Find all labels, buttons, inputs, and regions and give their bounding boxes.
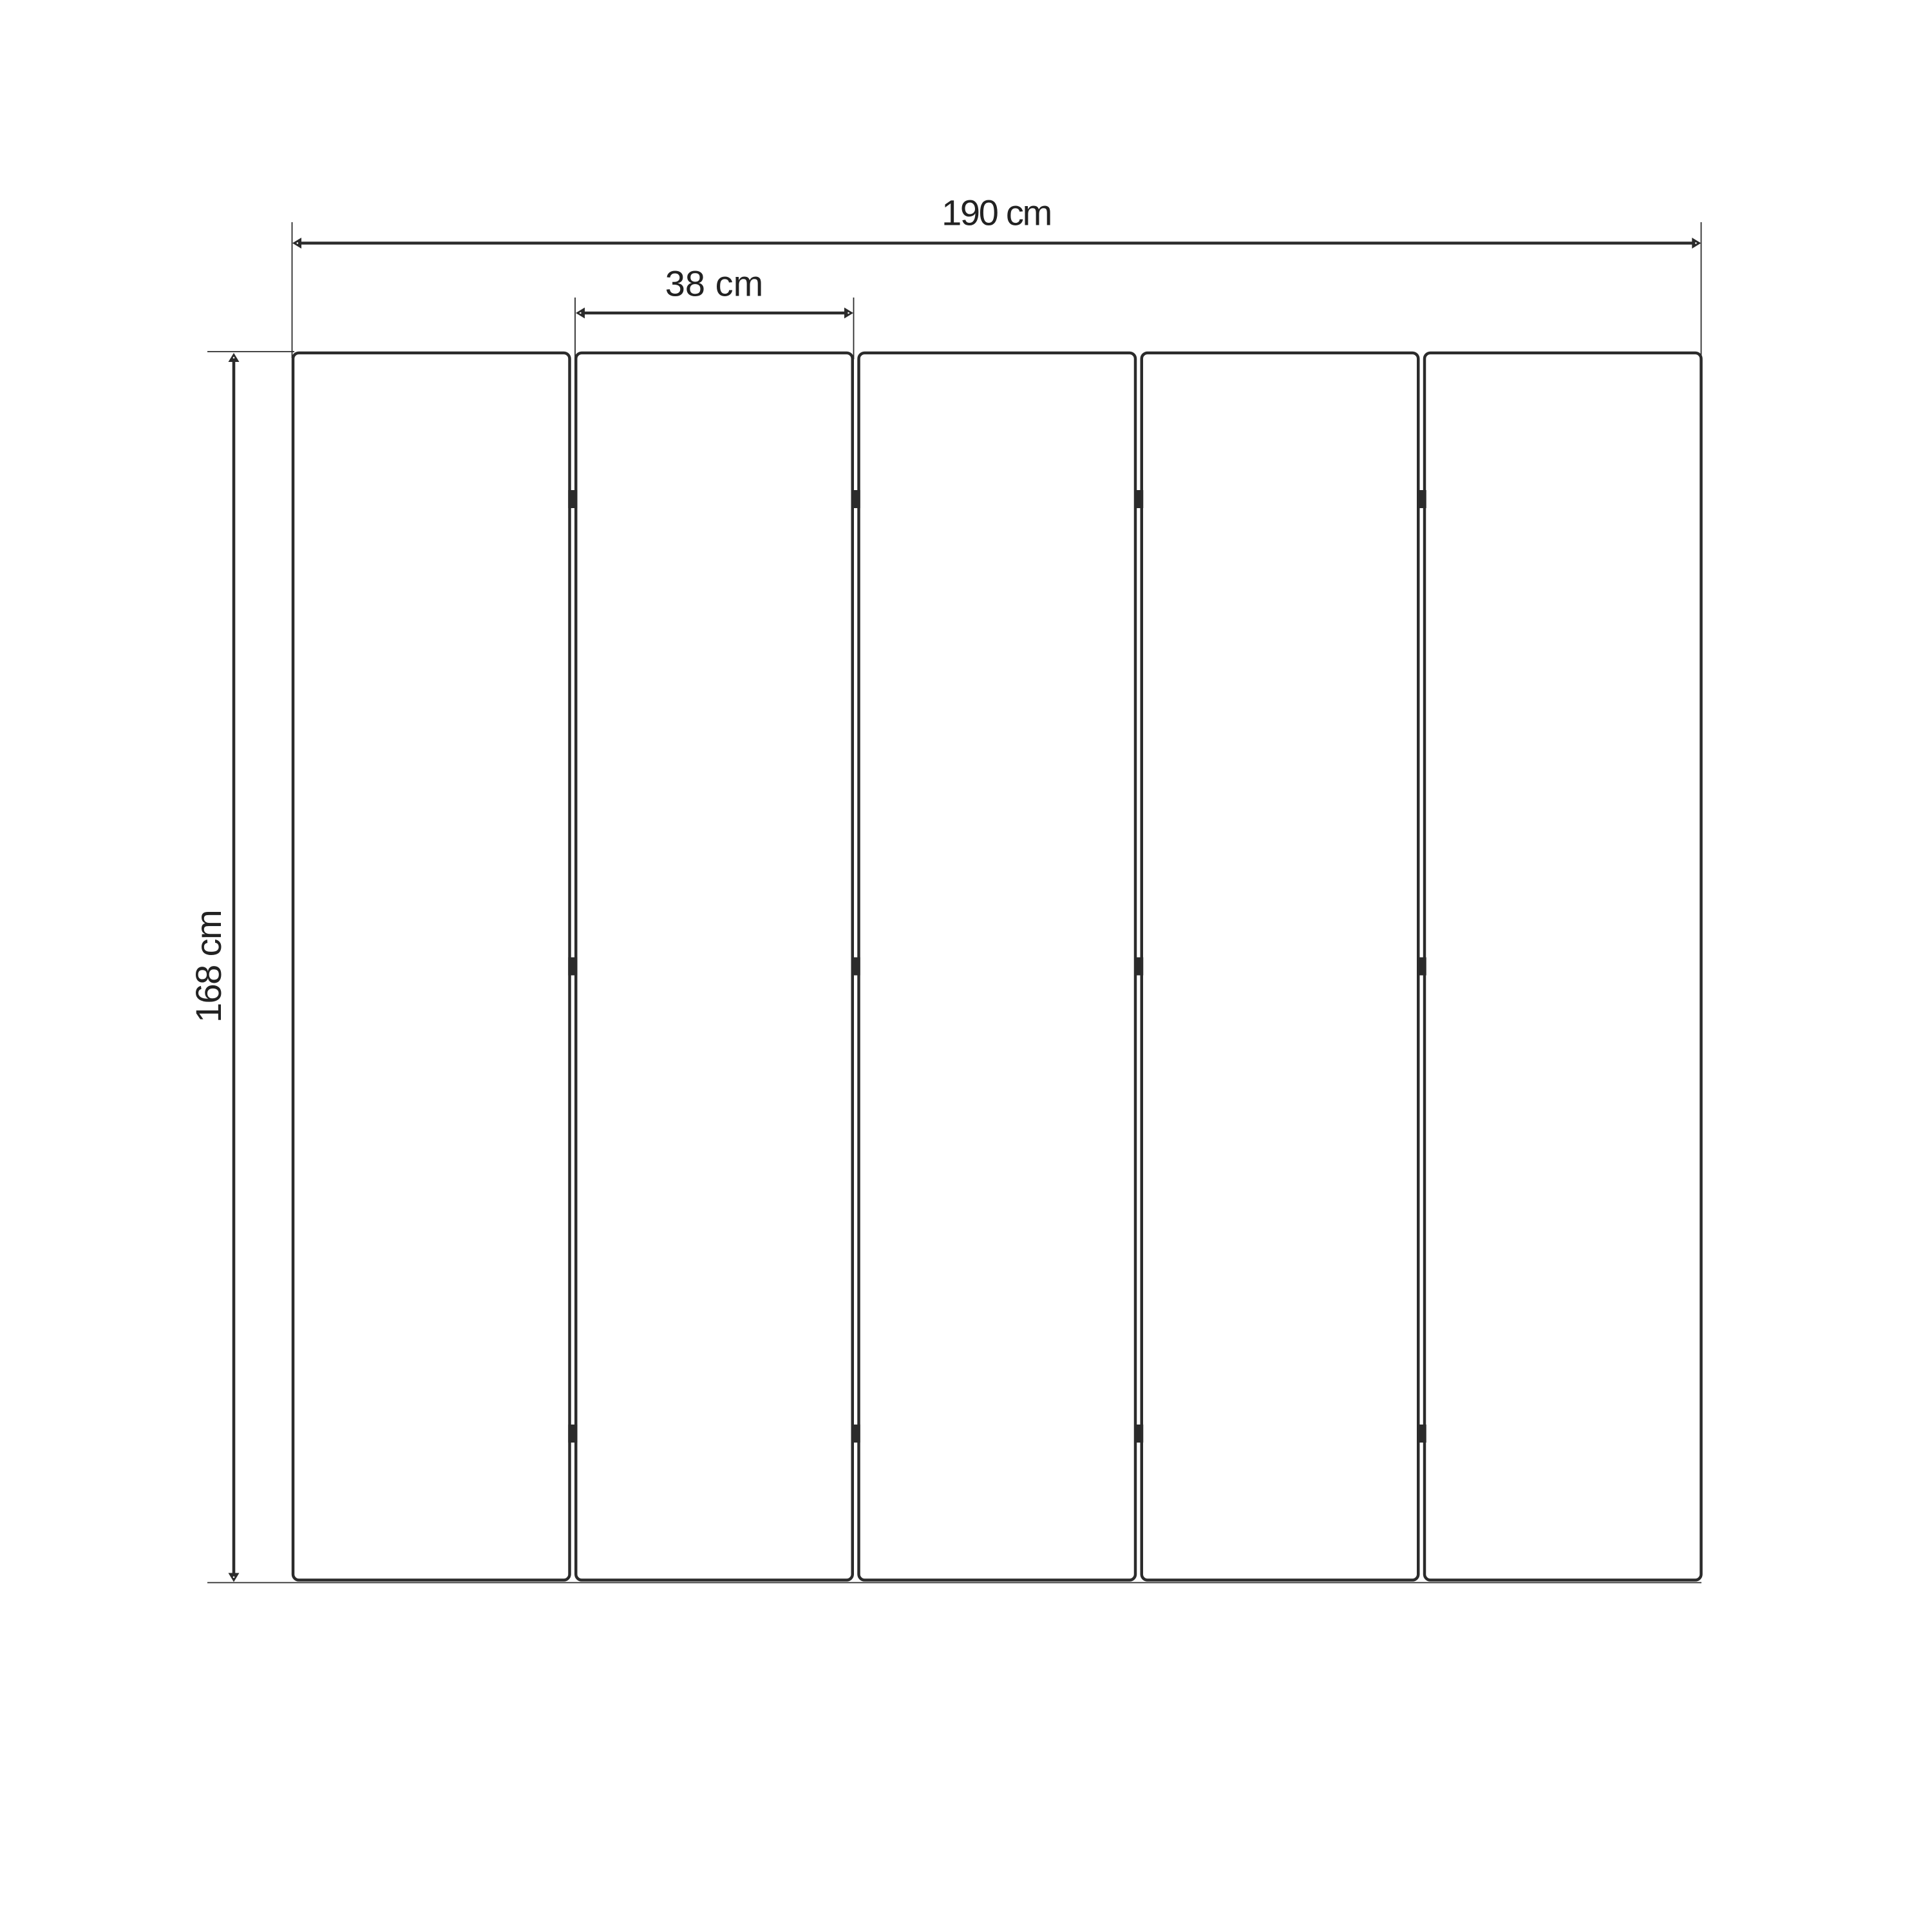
svg-text:168 cm: 168 cm [188,911,229,1023]
svg-text:38 cm: 38 cm [665,263,764,304]
svg-text:190 cm: 190 cm [942,193,1051,233]
